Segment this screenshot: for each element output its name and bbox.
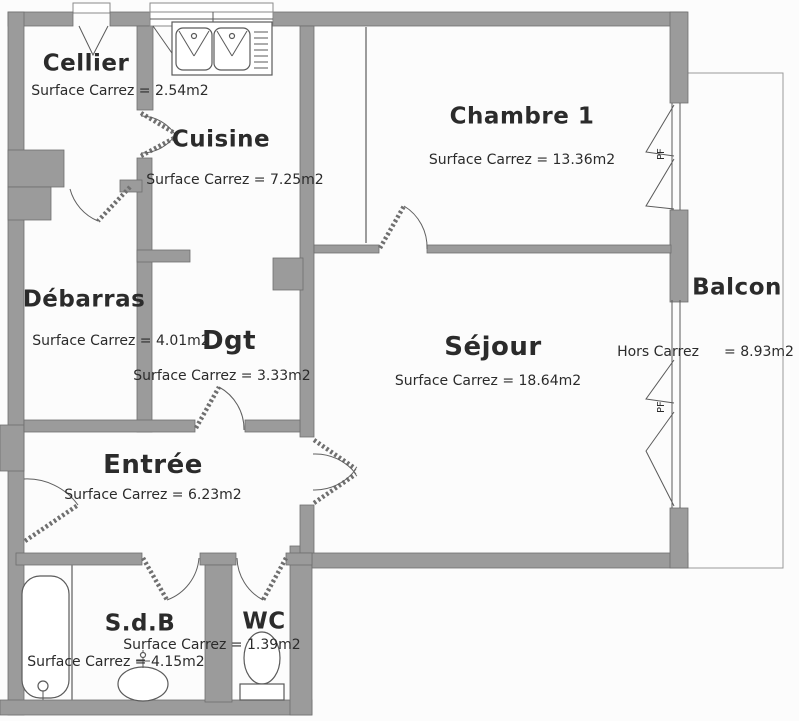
room-area-sdb: Surface Carrez = 4.15m2 [27,655,204,669]
room-area-wc: Surface Carrez = 1.39m2 [123,638,300,652]
cellier-exterior-door-recess [73,3,110,13]
kitchen-sink-icon [172,22,272,75]
window-pf-sejour: PF [646,300,680,508]
room-label-debarras: Débarras [23,289,146,312]
door-wc [237,558,286,600]
room-label-cellier: Cellier [43,53,130,76]
room-area-balcon-label: Hors Carrez [617,345,699,359]
room-area-sejour: Surface Carrez = 18.64m2 [395,374,581,388]
room-area-debarras: Surface Carrez = 4.01m2 [32,334,209,348]
room-area-balcon-value: = 8.93m2 [724,345,794,359]
room-label-entree: Entrée [103,452,203,478]
room-area-entree: Surface Carrez = 6.23m2 [64,488,241,502]
room-label-chambre1: Chambre 1 [450,106,595,129]
bathtub-icon [22,576,69,700]
room-area-chambre1: Surface Carrez = 13.36m2 [429,153,615,167]
door-dgt-entree [196,387,244,430]
room-label-wc: WC [242,611,285,634]
room-area-cellier: Surface Carrez = 2.54m2 [31,84,208,98]
door-chambre [380,206,427,249]
pf-label-1: PF [656,148,667,160]
room-label-balcon: Balcon [692,277,782,300]
room-area-dgt: Surface Carrez = 3.33m2 [133,369,310,383]
door-sdb [143,558,199,600]
room-label-cuisine: Cuisine [172,129,270,152]
balcony-outline [688,73,783,568]
room-area-cuisine: Surface Carrez = 7.25m2 [146,173,323,187]
pf-label-2: PF [656,401,667,413]
room-label-dgt: Dgt [202,328,256,354]
floor-plan: PF PF [0,0,799,721]
door-entree-sejour [313,440,356,503]
door-cellier-cuisine [141,113,176,156]
room-label-sdb: S.d.B [105,613,176,636]
room-label-sejour: Séjour [444,334,541,360]
window-pf-chambre: PF [646,103,680,210]
